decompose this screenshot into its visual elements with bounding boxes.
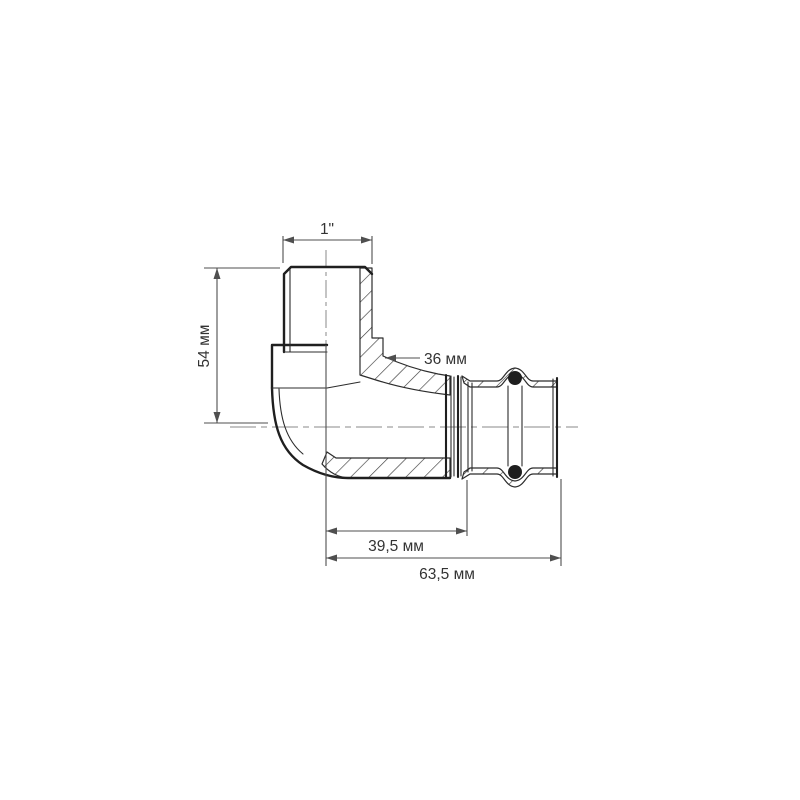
arrow-overall-left [326,555,337,562]
oring-seals [508,371,522,479]
fitting-drawing: 1" 54 мм 36 мм 39,5 мм 63,5 мм [0,0,800,800]
thread-exterior [284,267,372,352]
bore-top-edge [327,382,360,388]
label-body-width: 36 мм [424,351,467,368]
arrow-insertion-right [456,528,467,535]
section-top-wall [360,268,450,395]
oring-top [508,371,522,385]
arrow-thread-right [361,237,372,244]
arrow-height-top [214,268,221,279]
arrow-insertion-left [326,528,337,535]
oring-bottom [508,465,522,479]
dimension-arrowheads [214,237,562,562]
label-insertion-length: 39,5 мм [368,538,424,555]
arrow-height-bottom [214,412,221,423]
technical-drawing-canvas: 1" 54 мм 36 мм 39,5 мм 63,5 мм [0,0,800,800]
label-height: 54 мм [196,325,213,368]
label-overall-length: 63,5 мм [419,566,475,583]
section-bottom-wall [322,452,450,478]
arrow-overall-right [550,555,561,562]
label-thread-size: 1" [320,221,334,238]
arrow-thread-left [283,237,294,244]
centerlines [230,250,578,427]
